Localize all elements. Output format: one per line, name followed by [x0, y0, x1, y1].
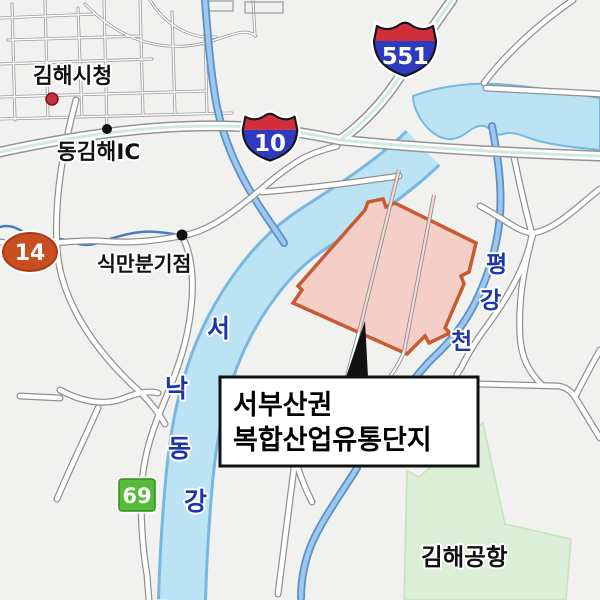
svg-text:강: 강 — [184, 487, 207, 516]
expressway-551-number: 551 — [382, 44, 429, 70]
callout-line2: 복합산업유통단지 — [233, 425, 432, 456]
city-hall-label: 김해시청 — [33, 64, 112, 89]
svg-text:동: 동 — [168, 434, 191, 463]
map-canvas: 서부산권 복합산업유통단지 551 10 14 69 서 낙 동 강 — [0, 0, 600, 600]
national-route-14-number: 14 — [15, 241, 46, 266]
svg-text:평: 평 — [486, 252, 507, 278]
callout-line1: 서부산권 — [233, 390, 332, 421]
map-svg: 서부산권 복합산업유통단지 551 10 14 69 서 낙 동 강 — [0, 0, 600, 600]
callout-box: 서부산권 복합산업유통단지 — [220, 377, 478, 466]
airport-label: 김해공항 — [421, 543, 508, 571]
national-route-14-shield-icon: 14 — [3, 233, 57, 271]
expressway-10-shield-icon: 10 — [243, 114, 298, 161]
sikman-junction-label: 식만분기점 — [97, 252, 191, 276]
svg-text:서: 서 — [207, 314, 230, 343]
expressway-551-shield-icon: 551 — [374, 23, 436, 76]
sikman-junction-marker-icon — [177, 230, 188, 241]
svg-text:낙: 낙 — [165, 374, 188, 403]
svg-text:천: 천 — [451, 329, 472, 355]
local-route-69-shield-icon: 69 — [119, 479, 155, 511]
expressway-10-number: 10 — [254, 131, 286, 157]
east-gimhae-ic-marker-icon — [102, 124, 112, 134]
east-gimhae-ic-label: 동김해IC — [57, 140, 140, 165]
city-hall-marker-icon — [46, 93, 58, 105]
local-route-69-number: 69 — [122, 484, 151, 508]
svg-text:강: 강 — [480, 288, 501, 314]
